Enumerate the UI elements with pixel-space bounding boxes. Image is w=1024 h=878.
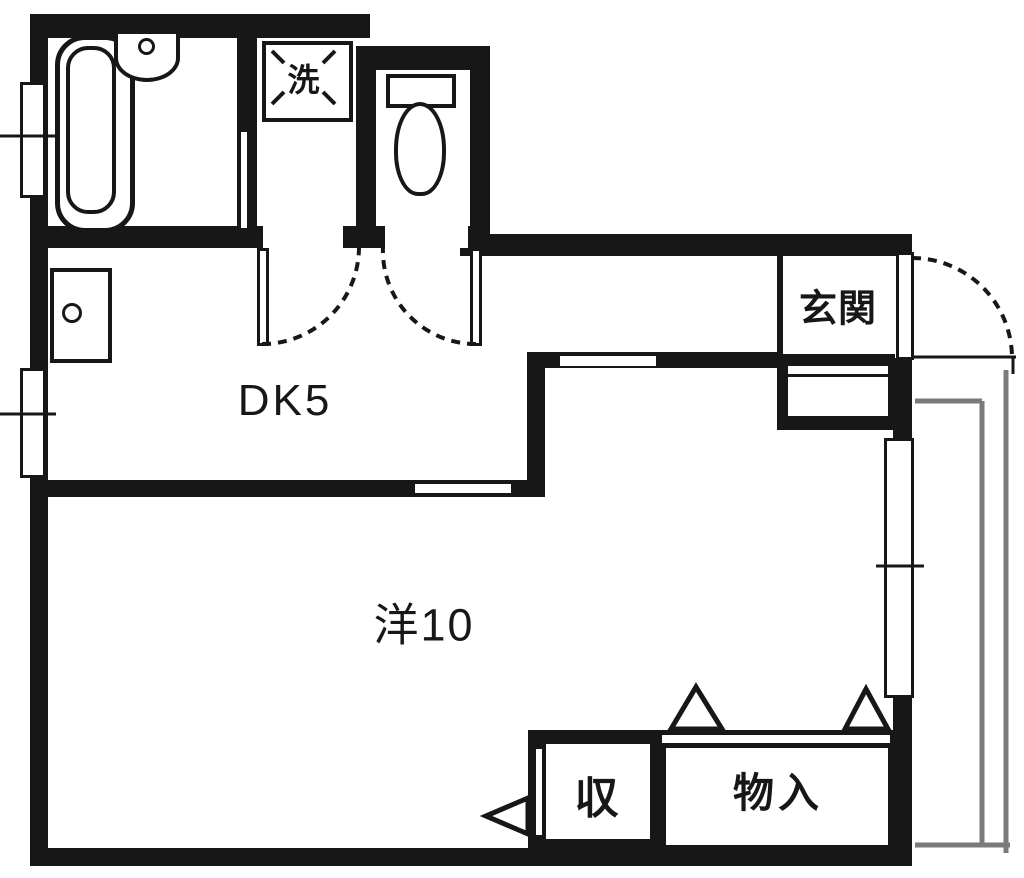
kitchen-window [20,368,46,478]
washroom-door-swing-arc [262,247,359,344]
closet-top-gap [662,735,890,743]
toilet-door-swing-arc [383,247,476,344]
wall-wash-toilet-divider [356,46,376,248]
washroom-door-leaf [257,248,269,346]
bathroom-window [20,82,46,198]
balcony-rail-lines [915,370,1010,853]
dk-label: DK5 [238,376,333,426]
living-label: 洋10 [373,589,474,654]
kitchen-sink-drain-icon [62,303,82,323]
entrance-door-swing-arc [912,258,1012,358]
entrance-step-edge [788,374,888,377]
washroom-door-opening [263,226,343,248]
bathroom-door-panel [239,130,249,230]
entrance-door-leaf [896,252,914,360]
toilet-bowl-fixture [394,102,446,196]
toilet-door-opening [385,226,468,248]
closet-door-triangle-left [671,687,722,729]
storage-label: 収 [575,762,620,826]
vanity-faucet-icon [138,38,155,55]
entrance-label: 玄関 [799,278,877,333]
living-window [884,438,914,698]
toilet-door-leaf [470,248,482,346]
wall-toilet-right [470,46,490,248]
storage-door-panel [534,747,544,837]
porch-edge-line [912,357,1016,374]
wall-genkan-left [777,248,783,358]
storage-door-triangle [486,798,528,834]
closet-label: 物入 [733,759,823,819]
wall-main-top [460,234,912,256]
hall-living-opening [558,354,658,368]
dk-living-opening [413,482,513,495]
laundry-label: 洗 [287,55,320,101]
floorplan: 洗 DK5 玄関 洋10 収 物入 [0,0,1024,878]
closet-door-triangle-right [845,689,888,729]
bathtub-inner-rim [66,46,116,214]
wall-dk-right [527,352,545,497]
